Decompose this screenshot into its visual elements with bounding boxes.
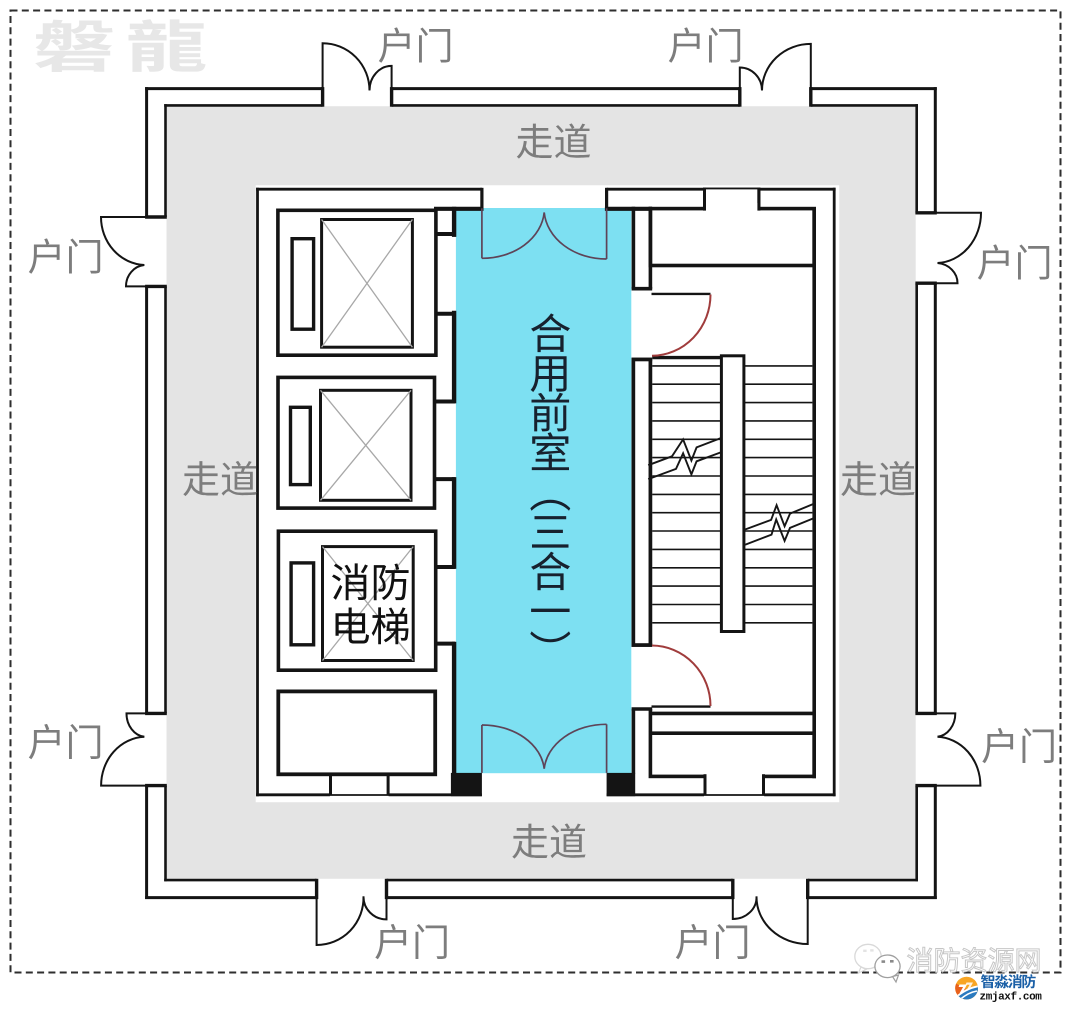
svg-text:zmjaxf.com: zmjaxf.com xyxy=(980,991,1043,1003)
